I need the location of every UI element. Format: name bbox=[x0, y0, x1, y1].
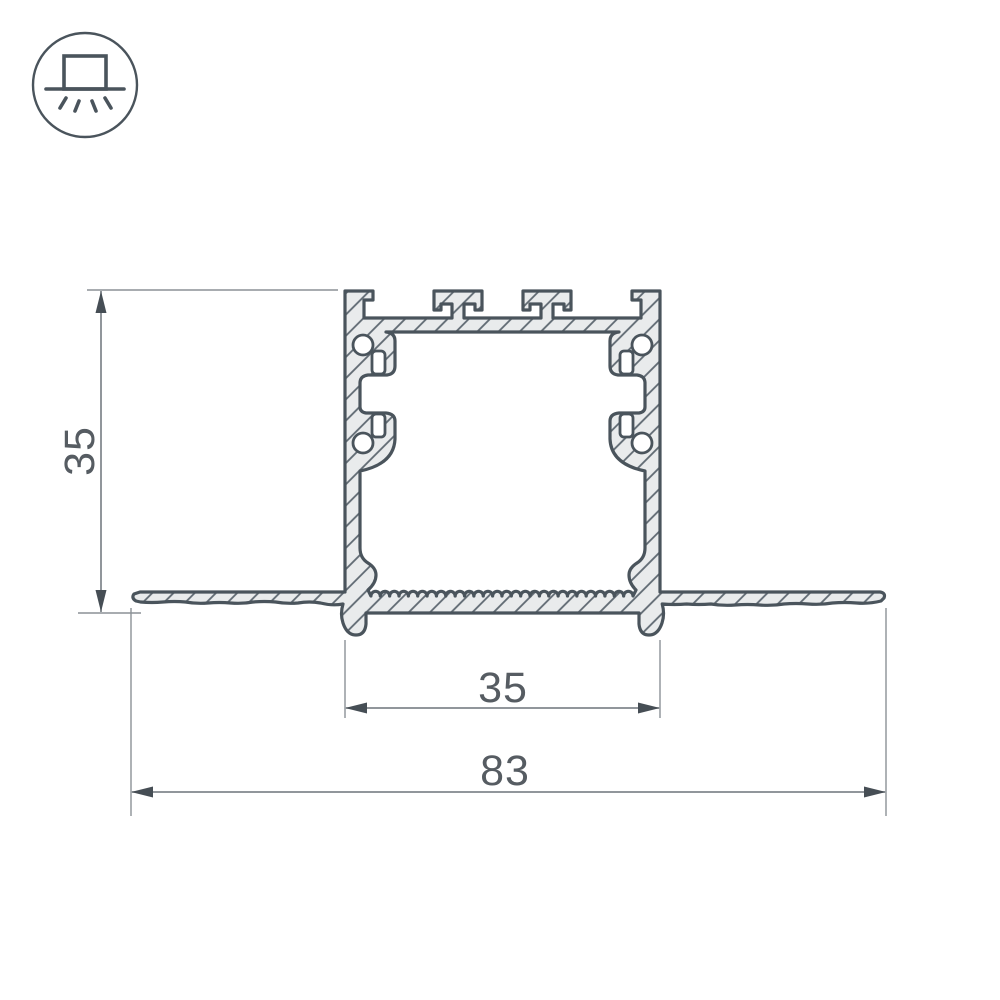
recessed-light-icon bbox=[33, 33, 137, 137]
screw-port-circle bbox=[353, 335, 373, 355]
arrow-left-icon bbox=[345, 703, 367, 714]
icon-circle bbox=[33, 33, 137, 137]
dimension-overall-width-label: 83 bbox=[480, 747, 530, 795]
screw-port-circle bbox=[353, 433, 373, 453]
profile-outline bbox=[133, 291, 885, 635]
arrow-right-icon bbox=[638, 703, 660, 714]
dimension-inner-width-label: 35 bbox=[478, 664, 528, 712]
profile-body bbox=[133, 291, 885, 635]
arrow-left-icon bbox=[131, 787, 153, 798]
dimension-height-label: 35 bbox=[56, 426, 104, 476]
dimension-inner-width: 35 bbox=[345, 640, 660, 718]
icon-fixture-box bbox=[64, 56, 106, 89]
arrow-up-icon bbox=[96, 291, 107, 313]
dimension-height: 35 bbox=[56, 290, 338, 613]
screw-port-slot bbox=[372, 414, 385, 437]
arrow-right-icon bbox=[864, 787, 886, 798]
screw-port-circle bbox=[632, 335, 652, 355]
dimension-overall-width: 83 bbox=[131, 608, 886, 816]
technical-drawing: 35 35 bbox=[0, 0, 1000, 1000]
drawing-canvas: 35 35 bbox=[0, 0, 1000, 1000]
screw-port-slot bbox=[620, 351, 633, 374]
screw-port-circle bbox=[632, 433, 652, 453]
screw-port-slot bbox=[620, 414, 633, 437]
icon-light-rays bbox=[60, 98, 111, 111]
screw-port-slot bbox=[372, 351, 385, 374]
arrow-down-icon bbox=[96, 590, 107, 612]
